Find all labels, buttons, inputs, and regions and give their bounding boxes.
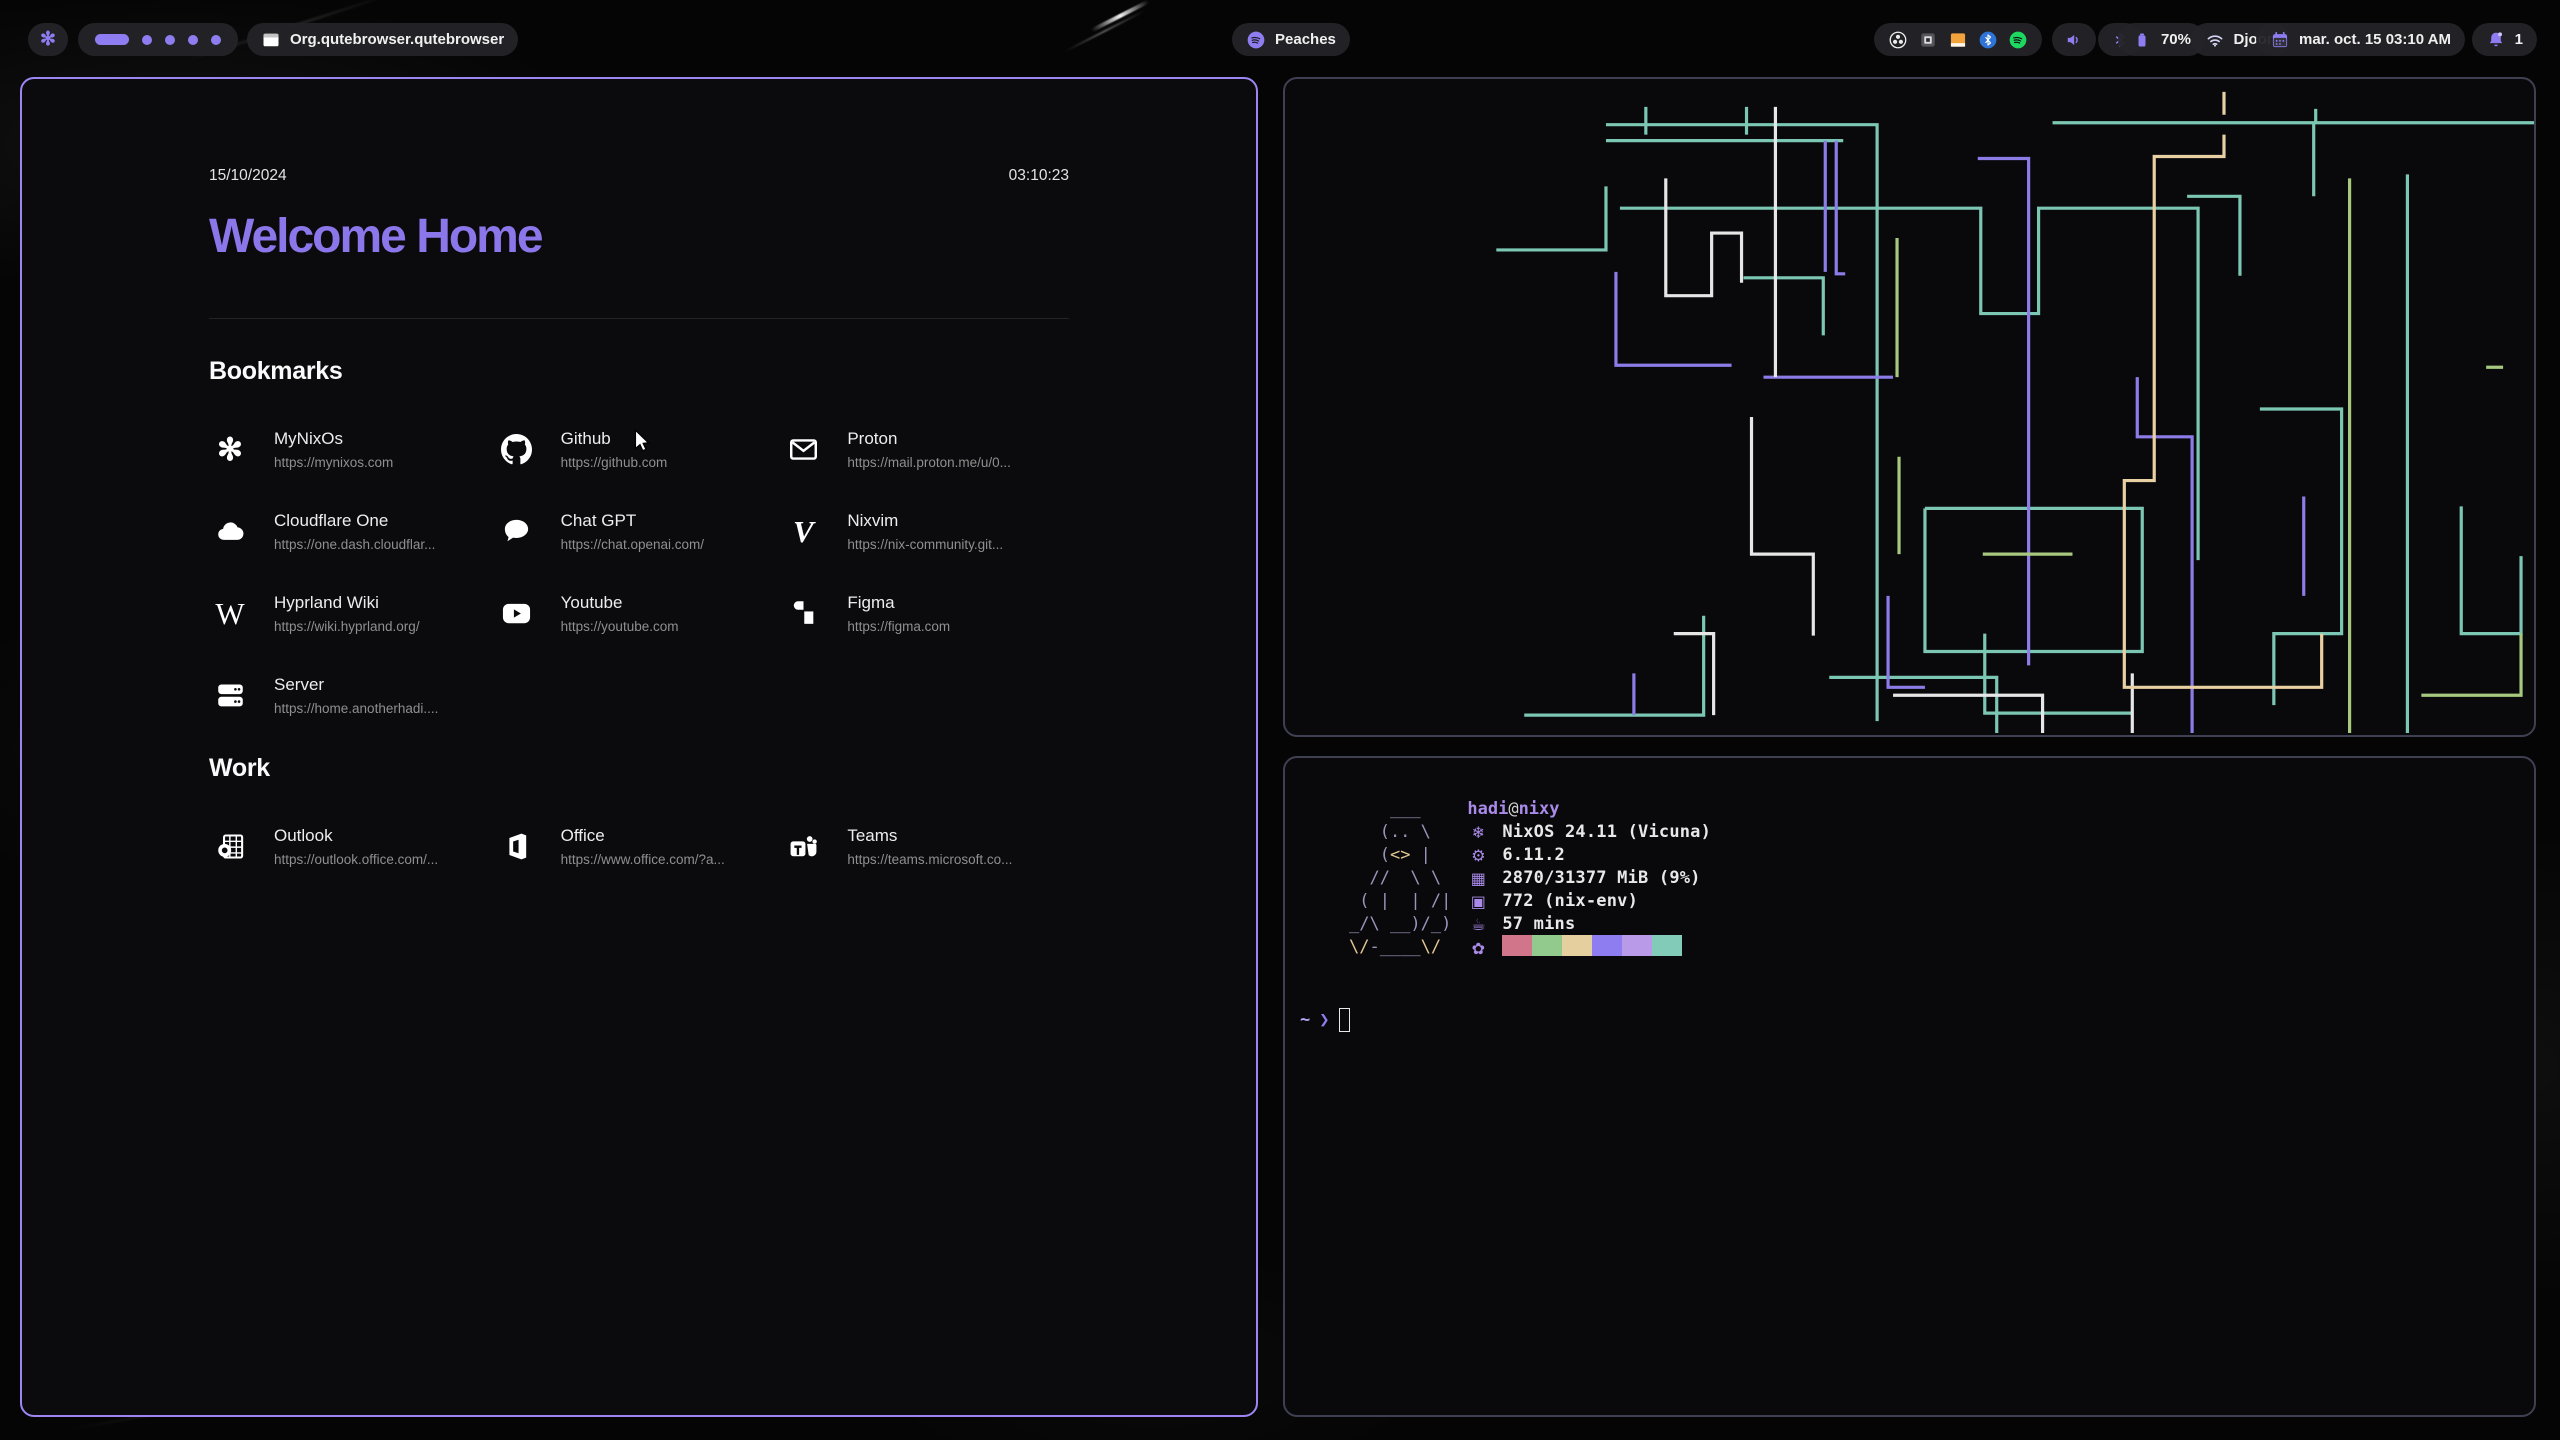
bookmark-title: Proton xyxy=(847,429,1011,449)
bookmark-url: https://wiki.hyprland.org/ xyxy=(274,619,420,634)
packages-icon: ▣ xyxy=(1467,890,1489,913)
active-window-title: Org.qutebrowser.qutebrowser xyxy=(290,31,504,48)
fetch-user: hadi xyxy=(1467,799,1508,819)
wifi-icon xyxy=(2205,30,2225,50)
memory-icon: ▦ xyxy=(1467,867,1489,890)
notifications-pill[interactable]: 1 xyxy=(2472,23,2537,56)
nixos-icon: ✻ xyxy=(209,428,251,470)
bookmark-url: https://figma.com xyxy=(847,619,950,634)
fastfetch-output: ___ (.. \ (<> | // \ \ ( | | /|_/\ __)/_… xyxy=(1349,798,1711,960)
fetch-palette-row: ✿ xyxy=(1467,937,1711,960)
outlook-icon xyxy=(209,825,251,867)
bookmark-text: Outlookhttps://outlook.office.com/... xyxy=(274,826,438,867)
battery-percent: 70% xyxy=(2161,31,2191,48)
qutebrowser-window: 15/10/2024 03:10:23 Welcome Home Bookmar… xyxy=(20,77,1258,1417)
bell-icon xyxy=(2486,30,2506,50)
color-swatch xyxy=(1592,935,1622,956)
palette-swatches xyxy=(1502,935,1682,963)
nixvim-v-icon: V xyxy=(782,510,824,552)
workspace-2[interactable] xyxy=(142,35,152,45)
system-tray xyxy=(1874,23,2042,56)
palette-icon: ✿ xyxy=(1467,937,1489,960)
bookmark-text: Chat GPThttps://chat.openai.com/ xyxy=(561,511,704,552)
bookmark-text: Serverhttps://home.anotherhadi.... xyxy=(274,675,438,716)
color-swatch xyxy=(1622,935,1652,956)
bookmark-title: Teams xyxy=(847,826,1012,846)
app-launcher-button[interactable]: ✻ xyxy=(28,23,68,56)
github-icon xyxy=(496,428,538,470)
bookmark-url: https://nix-community.git... xyxy=(847,537,1003,552)
pipes-art xyxy=(1285,79,2534,735)
prompt-path: ~ xyxy=(1300,1010,1310,1030)
bookmark-url: https://home.anotherhadi.... xyxy=(274,701,438,716)
prompt-chevron-icon: ❯ xyxy=(1319,1010,1329,1030)
fetch-title: hadi@nixy xyxy=(1467,798,1711,821)
bookmark-grid: ✻MyNixOshttps://mynixos.comGithubhttps:/… xyxy=(209,428,1069,716)
tux-ascii-art: ___ (.. \ (<> | // \ \ ( | | /|_/\ __)/_… xyxy=(1349,798,1451,960)
clock-pill[interactable]: mar. oct. 15 03:10 AM xyxy=(2256,23,2465,56)
bookmark-mynixos[interactable]: ✻MyNixOshttps://mynixos.com xyxy=(209,428,496,470)
shell-prompt[interactable]: ~ ❯ xyxy=(1300,1008,1350,1032)
fetch-row-kernel: ⚙6.11.2 xyxy=(1467,844,1711,867)
fetch-value: 57 mins xyxy=(1502,913,1575,936)
pipes-terminal-window xyxy=(1283,77,2536,737)
bookmark-url: https://outlook.office.com/... xyxy=(274,852,438,867)
obs-tray-icon[interactable] xyxy=(1888,30,1908,50)
spotify-tray-icon[interactable] xyxy=(2008,30,2028,50)
keyboard-tray-icon[interactable] xyxy=(1918,30,1938,50)
bookmark-text: Teamshttps://teams.microsoft.co... xyxy=(847,826,1012,867)
speaker-icon xyxy=(2064,30,2084,50)
media-track-label: Peaches xyxy=(1275,31,1336,48)
start-page: 15/10/2024 03:10:23 Welcome Home Bookmar… xyxy=(22,79,1256,867)
datetime-label: mar. oct. 15 03:10 AM xyxy=(2299,31,2451,48)
workspace-5[interactable] xyxy=(211,35,221,45)
bookmark-text: Youtubehttps://youtube.com xyxy=(561,593,679,634)
bookmark-teams[interactable]: Teamshttps://teams.microsoft.co... xyxy=(782,825,1069,867)
fetch-row-uptime: ☕57 mins xyxy=(1467,913,1711,936)
workspace-4[interactable] xyxy=(188,35,198,45)
bookmark-text: Cloudflare Onehttps://one.dash.cloudflar… xyxy=(274,511,435,552)
bookmark-office[interactable]: Officehttps://www.office.com/?a... xyxy=(496,825,783,867)
chat-bubble-icon xyxy=(496,510,538,552)
color-swatch xyxy=(1502,935,1532,956)
bookmark-figma[interactable]: Figmahttps://figma.com xyxy=(782,592,1069,634)
section-work: WorkOutlookhttps://outlook.office.com/..… xyxy=(209,754,1069,867)
section-bookmarks: Bookmarks✻MyNixOshttps://mynixos.comGith… xyxy=(209,357,1069,716)
bookmark-title: Youtube xyxy=(561,593,679,613)
bookmark-url: https://mynixos.com xyxy=(274,455,393,470)
page-title: Welcome Home xyxy=(209,209,1069,264)
envelope-icon xyxy=(782,428,824,470)
bookmark-text: MyNixOshttps://mynixos.com xyxy=(274,429,393,470)
bookmark-nixvim[interactable]: VNixvimhttps://nix-community.git... xyxy=(782,510,1069,552)
page-date: 15/10/2024 xyxy=(209,167,287,185)
section-title: Bookmarks xyxy=(209,357,1069,386)
bookmark-text: Officehttps://www.office.com/?a... xyxy=(561,826,725,867)
fetch-rows: ❄NixOS 24.11 (Vicuna)⚙6.11.2▦2870/31377 … xyxy=(1467,821,1711,936)
window-icon xyxy=(261,30,281,50)
active-window-pill[interactable]: Org.qutebrowser.qutebrowser xyxy=(247,23,518,56)
bookmark-outlook[interactable]: Outlookhttps://outlook.office.com/... xyxy=(209,825,496,867)
bookmark-url: https://www.office.com/?a... xyxy=(561,852,725,867)
page-time: 03:10:23 xyxy=(1009,167,1069,185)
bookmark-title: Server xyxy=(274,675,438,695)
server-icon xyxy=(209,674,251,716)
fetch-row-packages: ▣772 (nix-env) xyxy=(1467,890,1711,913)
cloud-icon xyxy=(209,510,251,552)
figma-icon xyxy=(782,592,824,634)
bookmark-title: Office xyxy=(561,826,725,846)
fetch-value: 772 (nix-env) xyxy=(1502,890,1638,913)
files-tray-icon[interactable] xyxy=(1948,30,1968,50)
fetch-value: NixOS 24.11 (Vicuna) xyxy=(1502,821,1711,844)
bookmark-title: Outlook xyxy=(274,826,438,846)
bookmark-cloudflare-one[interactable]: Cloudflare Onehttps://one.dash.cloudflar… xyxy=(209,510,496,552)
bookmark-url: https://mail.proton.me/u/0... xyxy=(847,455,1011,470)
youtube-play-icon xyxy=(496,592,538,634)
bookmark-url: https://one.dash.cloudflar... xyxy=(274,537,435,552)
bookmark-proton[interactable]: Protonhttps://mail.proton.me/u/0... xyxy=(782,428,1069,470)
terminal-content: ___ (.. \ (<> | // \ \ ( | | /|_/\ __)/_… xyxy=(1285,758,2534,1415)
os-icon: ❄ xyxy=(1467,821,1489,844)
bookmark-text: Figmahttps://figma.com xyxy=(847,593,950,634)
fetch-row-os: ❄NixOS 24.11 (Vicuna) xyxy=(1467,821,1711,844)
divider xyxy=(209,318,1069,319)
uptime-icon: ☕ xyxy=(1467,913,1489,936)
bookmark-hyprland-wiki[interactable]: WHyprland Wikihttps://wiki.hyprland.org/ xyxy=(209,592,496,634)
wiki-w-icon: W xyxy=(209,592,251,634)
bookmark-text: Protonhttps://mail.proton.me/u/0... xyxy=(847,429,1011,470)
top-bar: ✻ Org.qutebrowser.qutebrowser Peaches 70… xyxy=(0,0,2560,70)
nixos-logo-icon: ✻ xyxy=(40,28,56,51)
bookmark-text: Hyprland Wikihttps://wiki.hyprland.org/ xyxy=(274,593,420,634)
bookmark-title: Figma xyxy=(847,593,950,613)
bookmark-title: Cloudflare One xyxy=(274,511,435,531)
color-swatch xyxy=(1532,935,1562,956)
fetch-host: nixy xyxy=(1519,799,1560,819)
bluetooth-tray-icon[interactable] xyxy=(1978,30,1998,50)
fetch-value: 2870/31377 MiB (9%) xyxy=(1502,867,1700,890)
bookmark-grid: Outlookhttps://outlook.office.com/...Off… xyxy=(209,825,1069,867)
calendar-icon xyxy=(2270,30,2290,50)
fetch-value: 6.11.2 xyxy=(1502,844,1565,867)
workspaces xyxy=(78,23,238,56)
page-header: 15/10/2024 03:10:23 xyxy=(209,167,1069,185)
notification-count: 1 xyxy=(2515,31,2523,48)
bookmark-chat-gpt[interactable]: Chat GPThttps://chat.openai.com/ xyxy=(496,510,783,552)
spotify-icon xyxy=(1246,30,1266,50)
bookmark-url: https://github.com xyxy=(561,455,668,470)
volume-pill[interactable] xyxy=(2052,23,2096,56)
color-swatch xyxy=(1652,935,1682,956)
bookmark-youtube[interactable]: Youtubehttps://youtube.com xyxy=(496,592,783,634)
bookmark-url: https://teams.microsoft.co... xyxy=(847,852,1012,867)
bookmark-title: Hyprland Wiki xyxy=(274,593,420,613)
bookmark-text: Nixvimhttps://nix-community.git... xyxy=(847,511,1003,552)
media-player-pill[interactable]: Peaches xyxy=(1232,23,1350,56)
bookmark-title: Chat GPT xyxy=(561,511,704,531)
terminal-cursor xyxy=(1339,1008,1350,1032)
bookmark-server[interactable]: Serverhttps://home.anotherhadi.... xyxy=(209,674,496,716)
bookmark-url: https://chat.openai.com/ xyxy=(561,537,704,552)
teams-icon xyxy=(782,825,824,867)
workspace-1-active[interactable] xyxy=(95,34,129,45)
office-icon xyxy=(496,825,538,867)
fetch-info: hadi@nixy ❄NixOS 24.11 (Vicuna)⚙6.11.2▦2… xyxy=(1467,798,1711,960)
bookmark-title: MyNixOs xyxy=(274,429,393,449)
fetch-row-memory: ▦2870/31377 MiB (9%) xyxy=(1467,867,1711,890)
fetch-terminal-window: ___ (.. \ (<> | // \ \ ( | | /|_/\ __)/_… xyxy=(1283,756,2536,1417)
bookmark-title: Nixvim xyxy=(847,511,1003,531)
kernel-icon: ⚙ xyxy=(1467,844,1489,867)
bookmark-url: https://youtube.com xyxy=(561,619,679,634)
workspace-3[interactable] xyxy=(165,35,175,45)
color-swatch xyxy=(1562,935,1592,956)
mouse-cursor xyxy=(630,428,656,454)
battery-icon xyxy=(2132,30,2152,50)
section-title: Work xyxy=(209,754,1069,783)
